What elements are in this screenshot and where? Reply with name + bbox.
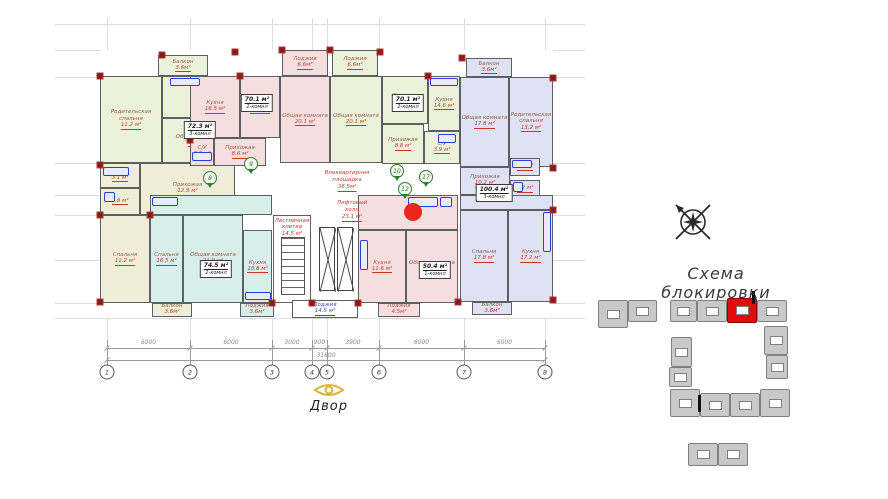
structural-column xyxy=(309,300,316,307)
courtyard-label: Двор xyxy=(299,399,359,414)
axis-extension-line xyxy=(379,340,380,365)
plan-marker-pin: 9 xyxy=(244,157,258,171)
room-name: Лестничная клетка xyxy=(274,218,310,231)
dimension-value: 3900 xyxy=(345,339,360,346)
room-area: 3.6м² xyxy=(164,309,179,317)
scheme-block-label xyxy=(709,401,722,410)
scheme-block[interactable] xyxy=(628,300,657,322)
room-prihozhaya-c: Прихожая8.8 м² xyxy=(382,124,424,164)
room-lodzhiya-c: Лоджия6.6м² xyxy=(332,50,378,76)
room-obshchaya-komnata-e: Общая комната21.9 м² xyxy=(183,215,243,303)
room-area: 4.5м² xyxy=(391,309,406,317)
room-area: 14.5 м² xyxy=(315,308,335,316)
apartment-room-count: 1-комнл xyxy=(423,271,447,277)
scheme-title: Схема блокировки xyxy=(636,264,796,302)
room-area: 6.6м² xyxy=(297,62,312,70)
common-area-note: Внеквартирнаяплощадка36.5м² xyxy=(325,170,370,192)
scheme-block[interactable] xyxy=(718,443,748,466)
room-roditelskaya-spalnya-a: Родительская спальня11.2 м² xyxy=(100,76,162,163)
scheme-block[interactable] xyxy=(760,389,790,417)
section-mark xyxy=(752,291,755,304)
scheme-block[interactable] xyxy=(669,367,692,387)
dimension-value: 6000 xyxy=(497,339,512,346)
scheme-block-label xyxy=(706,307,719,316)
scheme-block[interactable] xyxy=(700,393,730,417)
room-area: 13.2 м² xyxy=(521,125,541,133)
plan-marker-pin: 12 xyxy=(398,182,412,196)
room-area: 8.8 м² xyxy=(395,143,412,151)
room-name: Родительская спальня xyxy=(510,112,552,125)
scheme-block-label xyxy=(607,310,620,319)
scheme-block[interactable] xyxy=(757,300,787,322)
fixture xyxy=(438,134,456,143)
structural-column xyxy=(550,297,557,304)
fixture xyxy=(104,192,115,202)
room-balkon-d: Балкон3.6м² xyxy=(466,58,512,77)
scheme-block-label xyxy=(766,307,779,316)
room-obshchaya-komnata-c: Общая комната20.1 м² xyxy=(330,76,382,163)
apartment-label[interactable]: 74.5 м²2-комнл xyxy=(200,260,232,278)
scheme-block-label xyxy=(677,307,690,316)
dimension-value: 6000 xyxy=(141,339,156,346)
structural-column xyxy=(377,49,384,56)
plan-marker-pin: 10 xyxy=(390,164,404,178)
apartment-label[interactable]: 70.1 м²2-комнл xyxy=(241,94,273,112)
room-obshchaya-komnata-d: Общая комната17.8 м² xyxy=(460,77,509,167)
scheme-block[interactable] xyxy=(688,443,718,466)
room-lodzhiya-center: Лоджия14.5 м² xyxy=(292,300,358,318)
scheme-block[interactable] xyxy=(697,300,727,322)
structural-column xyxy=(237,73,244,80)
axis-bubble-4: 4 xyxy=(305,365,320,380)
apartment-room-count: 2-комнл xyxy=(204,270,228,276)
floor-plan-page: Балкон3.6м²Родительская спальня11.2 м²Ку… xyxy=(0,0,888,499)
room-balkon-a: Балкон3.6м² xyxy=(158,55,208,76)
room-balkon-a2: Балкон3.6м² xyxy=(152,303,192,317)
structural-column xyxy=(550,165,557,172)
fixture xyxy=(543,212,551,252)
scheme-block[interactable] xyxy=(766,355,788,379)
dimension-value: 900 xyxy=(314,339,325,346)
structural-column xyxy=(550,75,557,82)
apartment-area: 70.1 м² xyxy=(396,96,420,104)
apartment-label[interactable]: 72.3 м²3-комнл xyxy=(184,121,216,139)
room-area: 3.6м² xyxy=(484,308,499,315)
axis-extension-line xyxy=(464,340,465,365)
room-area: 6.6м² xyxy=(347,62,362,70)
room-area: 17.8 м² xyxy=(474,255,494,263)
scheme-block-label xyxy=(771,363,784,372)
structural-column xyxy=(97,162,104,169)
axis-bubble-6: 6 xyxy=(372,365,387,380)
courtyard-eye-icon xyxy=(312,380,346,400)
dimension-value: 6000 xyxy=(414,339,429,346)
axis-bubble-3: 3 xyxy=(265,365,280,380)
scheme-block[interactable] xyxy=(730,393,760,417)
room-area: 11.6 м² xyxy=(372,266,392,274)
scheme-block-label xyxy=(770,336,783,345)
apartment-room-count: 3-комнл xyxy=(480,194,509,200)
apartment-area: 100.4 м² xyxy=(480,186,509,194)
grid-line-horizontal xyxy=(55,24,585,25)
room-area: 14.6 м² xyxy=(434,103,454,111)
common-area-note: Лифтовыйхолл23.1 м² xyxy=(337,200,367,222)
scheme-block[interactable] xyxy=(764,326,788,355)
structural-column xyxy=(425,73,432,80)
room-area: 16.5 м² xyxy=(156,258,176,266)
structural-column xyxy=(355,300,362,307)
apartment-area: 50.4 м² xyxy=(423,263,447,271)
structural-column xyxy=(232,49,239,56)
fixture xyxy=(430,78,458,86)
scheme-block-label xyxy=(727,450,740,459)
fixture xyxy=(192,152,212,161)
fixture xyxy=(512,160,532,168)
plan-marker-pin: 8 xyxy=(203,171,217,185)
room-area: 10.8 м² xyxy=(247,266,267,274)
structural-column xyxy=(159,52,166,59)
grid-line-horizontal xyxy=(55,318,585,319)
room-roditelskaya-spalnya-d: Родительская спальня13.2 м² xyxy=(509,77,553,167)
scheme-block-label xyxy=(697,450,710,459)
fixture xyxy=(103,167,129,176)
apartment-label[interactable]: 50.4 м²1-комнл xyxy=(419,261,451,279)
room-area: 17.2 м² xyxy=(520,255,540,263)
axis-bubble-2: 2 xyxy=(183,365,198,380)
axis-extension-line xyxy=(545,340,546,365)
scheme-block[interactable] xyxy=(598,300,628,328)
axis-bubble-8: 8 xyxy=(538,365,553,380)
scheme-block-label xyxy=(674,373,687,382)
scheme-block[interactable] xyxy=(671,337,692,367)
scheme-block-label xyxy=(736,306,749,315)
room-area: 16.5 м² xyxy=(205,106,225,114)
apartment-area: 70.1 м² xyxy=(245,96,269,104)
structural-column xyxy=(279,47,286,54)
plan-marker-pin: 17 xyxy=(419,170,433,184)
room-area: 11.2 м² xyxy=(121,122,141,130)
dimension-value: 6000 xyxy=(223,339,238,346)
structural-column xyxy=(327,47,334,54)
room-spalnya-e: Спальня16.5 м² xyxy=(150,215,183,303)
scheme-block-label xyxy=(636,307,649,316)
staircase xyxy=(281,237,305,295)
dimension-line-total xyxy=(107,360,545,361)
fixture xyxy=(513,182,523,192)
fixture xyxy=(170,78,200,86)
axis-bubble-5: 5 xyxy=(320,365,335,380)
scheme-block[interactable] xyxy=(670,300,697,322)
scheme-block-label xyxy=(739,401,752,410)
room-area: 3.9 м² xyxy=(434,147,451,155)
dimension-total-value: 31800 xyxy=(316,352,335,359)
apartment-area: 74.5 м² xyxy=(204,262,228,270)
section-mark xyxy=(698,395,701,412)
structural-column xyxy=(459,55,466,62)
room-lodzhiya-b: Лоджия6.6м² xyxy=(282,50,328,76)
scheme-block[interactable] xyxy=(670,389,700,417)
selected-unit-dot xyxy=(404,203,422,221)
structural-column xyxy=(269,300,276,307)
axis-bubble-1: 1 xyxy=(100,365,115,380)
apartment-room-count: 3-комнл xyxy=(188,131,212,137)
axis-extension-line xyxy=(272,340,273,365)
fixture xyxy=(245,292,271,300)
room-area: 17.8 м² xyxy=(474,121,494,129)
room-area: 20.1 м² xyxy=(295,119,315,127)
fixture xyxy=(360,240,368,270)
compass-icon xyxy=(658,187,728,257)
fixture xyxy=(440,197,452,207)
room-area: 3.6м² xyxy=(481,67,496,75)
elevator-shaft xyxy=(337,227,353,291)
room-obshchaya-komnata-b: Общая комната20.1 м² xyxy=(280,76,330,163)
scheme-block-label xyxy=(679,399,692,408)
axis-bubble-7: 7 xyxy=(457,365,472,380)
room-area: 3.6м² xyxy=(175,65,190,73)
room-name: Родительская спальня xyxy=(101,109,161,122)
room-spalnya-d: Спальня17.8 м² xyxy=(460,210,508,302)
room-prihozhaya-b: Прихожая8.6 м² xyxy=(214,138,266,166)
apartment-room-count: 2-комнл xyxy=(396,104,420,110)
structural-column xyxy=(550,207,557,214)
apartment-area: 72.3 м² xyxy=(188,123,212,131)
scheme-block-label xyxy=(675,348,688,357)
structural-column xyxy=(97,73,104,80)
structural-column xyxy=(455,299,462,306)
apartment-room-count: 2-комнл xyxy=(245,104,269,110)
room-area: 3.6м² xyxy=(249,309,264,317)
axis-extension-line xyxy=(107,340,108,365)
structural-column xyxy=(147,212,154,219)
scheme-block-label xyxy=(769,399,782,408)
apartment-label[interactable]: 100.4 м²3-комнл xyxy=(476,184,513,202)
fixture xyxy=(152,197,178,206)
room-lodzhiya-f: Лоджия4.5м² xyxy=(378,303,420,317)
axis-extension-line xyxy=(190,340,191,365)
room-balkon-d2: Балкон3.6м² xyxy=(472,302,512,315)
structural-column xyxy=(97,212,104,219)
elevator-shaft xyxy=(319,227,335,291)
structural-column xyxy=(97,299,104,306)
room-spalnya-a: Спальня11.2 м² xyxy=(100,215,150,303)
room-area: 20.1 м² xyxy=(346,119,366,127)
dimension-value: 3000 xyxy=(284,339,299,346)
room-area: 11.2 м² xyxy=(115,258,135,266)
apartment-label[interactable]: 70.1 м²2-комнл xyxy=(392,94,424,112)
